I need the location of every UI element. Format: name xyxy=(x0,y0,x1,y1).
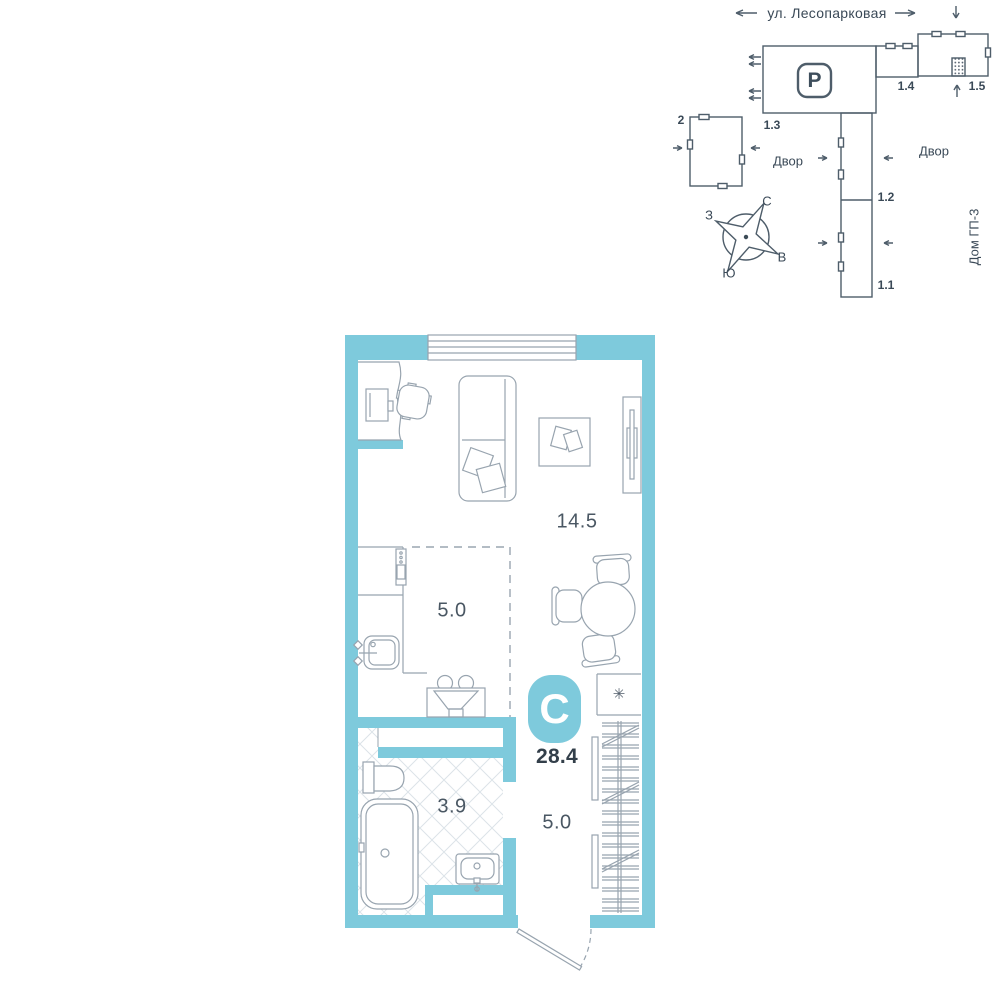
plan-drawing xyxy=(0,0,1000,1000)
coffee-table xyxy=(539,418,590,466)
building-1-1-label: 1.1 xyxy=(878,278,895,292)
compass-north-label: С xyxy=(762,194,771,209)
compass-east-label: В xyxy=(778,250,787,265)
arrow-left-icon xyxy=(751,146,760,151)
yard-label-right: Двор xyxy=(919,144,949,159)
building-1-5-label: 1.5 xyxy=(969,79,986,93)
building-2 xyxy=(673,115,760,189)
total-area-label: 28.4 xyxy=(536,745,578,769)
building-1-4 xyxy=(876,44,918,78)
floorplan-page: ул. Лесопарковая P 1.3 1.4 1.5 2 1.2 1.1… xyxy=(0,0,1000,1000)
bathtub xyxy=(359,799,418,909)
entrance-arrows-left-icon xyxy=(749,55,761,101)
compass-west-label: З xyxy=(705,208,713,223)
kitchen-sink xyxy=(354,636,399,669)
marker-arrow-up-icon xyxy=(954,85,960,97)
window xyxy=(428,335,576,360)
dining-set xyxy=(552,554,635,668)
stove xyxy=(427,676,485,718)
tv-icon xyxy=(630,410,634,479)
street-arrow-right-icon xyxy=(895,10,915,16)
hallway-area-label: 5.0 xyxy=(542,812,571,835)
dining-table xyxy=(581,582,635,636)
street-label: ул. Лесопарковая xyxy=(767,5,886,21)
tv-unit xyxy=(623,397,641,493)
arrow-right-icon xyxy=(673,146,682,151)
door-swing-arc xyxy=(581,929,591,966)
wardrobe xyxy=(592,721,639,913)
building-1-3-label: 1.3 xyxy=(764,118,781,132)
sofa xyxy=(459,376,516,501)
compass-icon xyxy=(698,187,796,288)
compass-south-label: Ю xyxy=(722,266,735,281)
desk xyxy=(358,362,401,440)
building-tower-1-1-1-2 xyxy=(818,113,893,297)
street-arrow-left-icon xyxy=(736,10,757,16)
building-1-4-label: 1.4 xyxy=(898,79,915,93)
living-room-area-label: 14.5 xyxy=(557,511,598,534)
building-1-2-label: 1.2 xyxy=(878,190,895,204)
entrance-door xyxy=(517,929,591,970)
section-marker xyxy=(952,58,965,76)
bathroom-area-label: 3.9 xyxy=(437,796,466,819)
parking-letter: P xyxy=(807,69,821,93)
yard-label-left: Двор xyxy=(773,154,803,169)
kitchen-area-label: 5.0 xyxy=(437,600,466,623)
studio-type-letter: С xyxy=(539,688,569,730)
studio-type-badge: С xyxy=(528,675,581,743)
building-2-label: 2 xyxy=(678,113,685,127)
marker-arrow-down-icon xyxy=(953,6,959,18)
appliance-symbol: ✳ xyxy=(613,685,626,703)
house-label: Дом ГП-3 xyxy=(967,209,982,266)
